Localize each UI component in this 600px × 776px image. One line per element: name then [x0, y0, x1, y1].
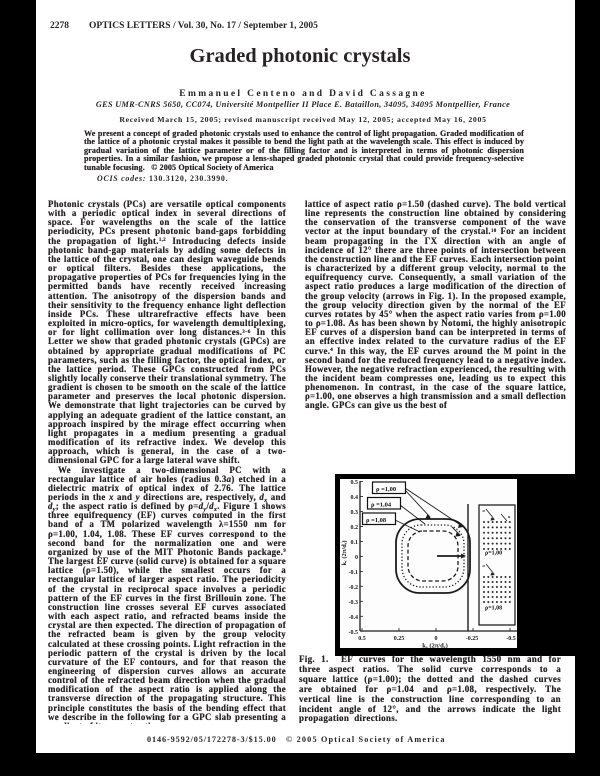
- svg-text:0.4: 0.4: [351, 495, 359, 501]
- svg-text:kᵣ (2π/dᵣ): kᵣ (2π/dᵣ): [341, 540, 348, 565]
- svg-text:ρ =1,00: ρ =1,00: [376, 486, 396, 493]
- svg-text:-0.4: -0.4: [349, 615, 359, 621]
- svg-text:0.1: 0.1: [351, 540, 359, 546]
- svg-text:0.3: 0.3: [351, 510, 359, 516]
- svg-text:ρ=1,00: ρ=1,00: [485, 551, 502, 557]
- svg-text:-0.5: -0.5: [349, 630, 359, 636]
- svg-text:-0.1: -0.1: [349, 570, 359, 576]
- svg-text:0.5: 0.5: [351, 480, 359, 486]
- svg-text:0: 0: [435, 636, 438, 642]
- svg-text:-0.5: -0.5: [506, 636, 516, 642]
- svg-text:0.25: 0.25: [394, 636, 405, 642]
- svg-text:0.2: 0.2: [351, 525, 359, 531]
- svg-text:-0.25: -0.25: [466, 636, 479, 642]
- svg-text:-0.2: -0.2: [349, 585, 359, 591]
- svg-text:ρ =1,08: ρ =1,08: [366, 517, 387, 524]
- svg-text:kₓ (2π/dₓ): kₓ (2π/dₓ): [422, 643, 448, 650]
- svg-text:0: 0: [355, 555, 358, 561]
- svg-text:ρ =1,04: ρ =1,04: [371, 501, 392, 508]
- svg-text:-0.3: -0.3: [349, 600, 359, 606]
- svg-text:ρ=1,08: ρ=1,08: [485, 606, 502, 612]
- svg-text:0.5: 0.5: [358, 636, 366, 642]
